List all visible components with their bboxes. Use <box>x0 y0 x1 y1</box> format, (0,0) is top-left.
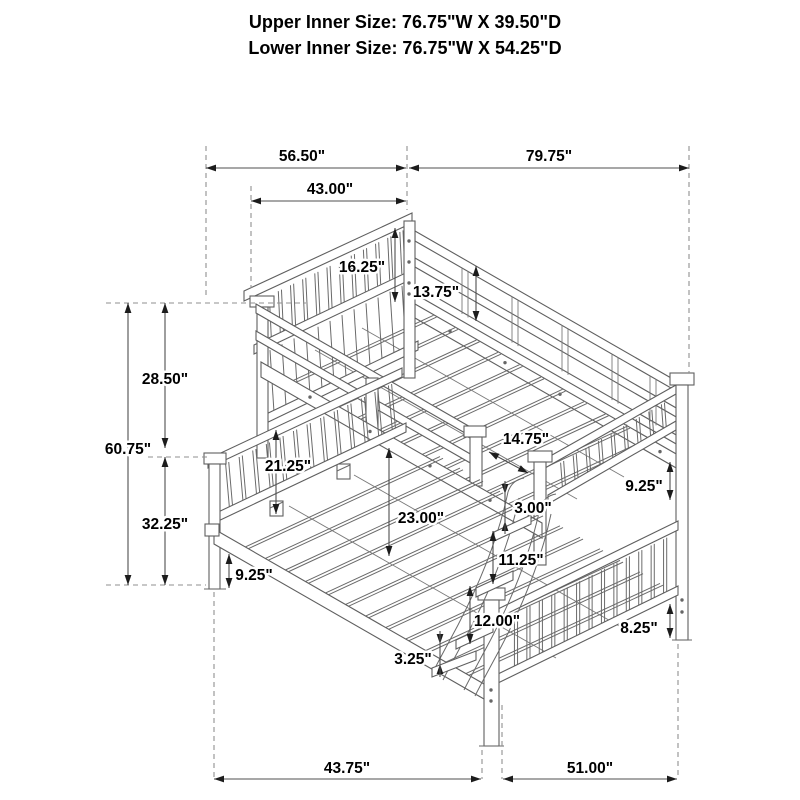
dim-label-top-width-right: 79.75" <box>526 148 572 165</box>
dim-label-overall-height: 60.75" <box>105 441 151 458</box>
dim-label-left-rail-height: 9.25" <box>235 567 273 584</box>
dim-label-ladder-rung-spacing: 11.25" <box>498 552 543 569</box>
dim-label-bottom-length: 51.00" <box>567 760 613 777</box>
dim-label-ladder-bottom-step: 12.00" <box>474 613 520 630</box>
dim-label-bottom-depth: 43.75" <box>324 760 370 777</box>
dim-label-top-width-left: 56.50" <box>279 148 325 165</box>
dim-label-lower-headboard-above-deck: 21.25" <box>265 458 311 475</box>
dim-label-upper-headboard-height: 16.25" <box>339 259 385 276</box>
diagram-canvas: Upper Inner Size: 76.75"W X 39.50"D Lowe… <box>0 0 800 800</box>
dim-label-upper-bunk-width: 43.00" <box>307 181 353 198</box>
dim-label-rail-thickness: 3.25" <box>394 651 432 668</box>
dim-label-bunk-clearance: 23.00" <box>398 510 444 527</box>
dim-label-ladder-hook-offset: 3.00" <box>514 500 552 517</box>
bunk-bed-dimension-diagram: Upper Inner Size: 76.75"W X 39.50"D Lowe… <box>0 0 800 800</box>
upper-inner-size-title: Upper Inner Size: 76.75"W X 39.50"D <box>249 12 561 32</box>
lower-inner-size-title: Lower Inner Size: 76.75"W X 54.25"D <box>248 38 561 58</box>
dim-label-upper-section-height: 28.50" <box>142 371 188 388</box>
dim-label-right-rail-height: 9.25" <box>625 478 663 495</box>
dim-label-footboard-leg-height: 8.25" <box>620 620 658 637</box>
dim-label-lower-section-height: 32.25" <box>142 516 188 533</box>
dimension-labels: Upper Inner Size: 76.75"W X 39.50"D Lowe… <box>105 12 663 777</box>
dim-label-upper-footboard-rail-height: 13.75" <box>413 284 459 301</box>
dim-label-bunk-depth-difference: 14.75" <box>503 431 549 448</box>
